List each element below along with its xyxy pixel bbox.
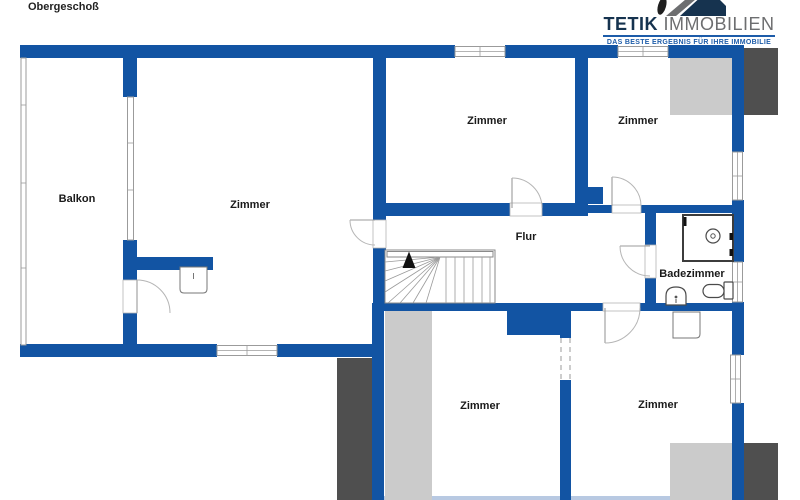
door-zimmer-left: [350, 220, 386, 248]
sink-left-zimmer: [180, 267, 207, 293]
shower: [683, 215, 733, 261]
door-bathroom: [620, 245, 656, 278]
window-top-center: [455, 47, 505, 57]
floor-plan-page: Obergeschoß TETIK IMMOBILIEN DAS BESTE E…: [0, 0, 800, 500]
window-top-right: [618, 47, 668, 57]
toilet: [703, 282, 733, 299]
balcony-railing: [21, 58, 26, 345]
door-zimmer-top-right: [612, 177, 641, 213]
door-balcony: [123, 280, 170, 313]
door-zimmer-bottom-right: [603, 303, 640, 343]
sink: [666, 287, 686, 305]
window-right-zimmer: [733, 152, 743, 200]
plan-overlay: [0, 0, 800, 500]
cabinet-below-bath: [673, 312, 700, 338]
window-bottom-right: [731, 355, 741, 403]
window-balcony-glass: [128, 97, 134, 240]
window-bathroom: [733, 262, 743, 302]
staircase: [385, 250, 495, 303]
wall-opening-dashed: [560, 338, 571, 380]
door-zimmer-top-center: [510, 178, 542, 216]
window-bottom-left: [217, 346, 277, 356]
